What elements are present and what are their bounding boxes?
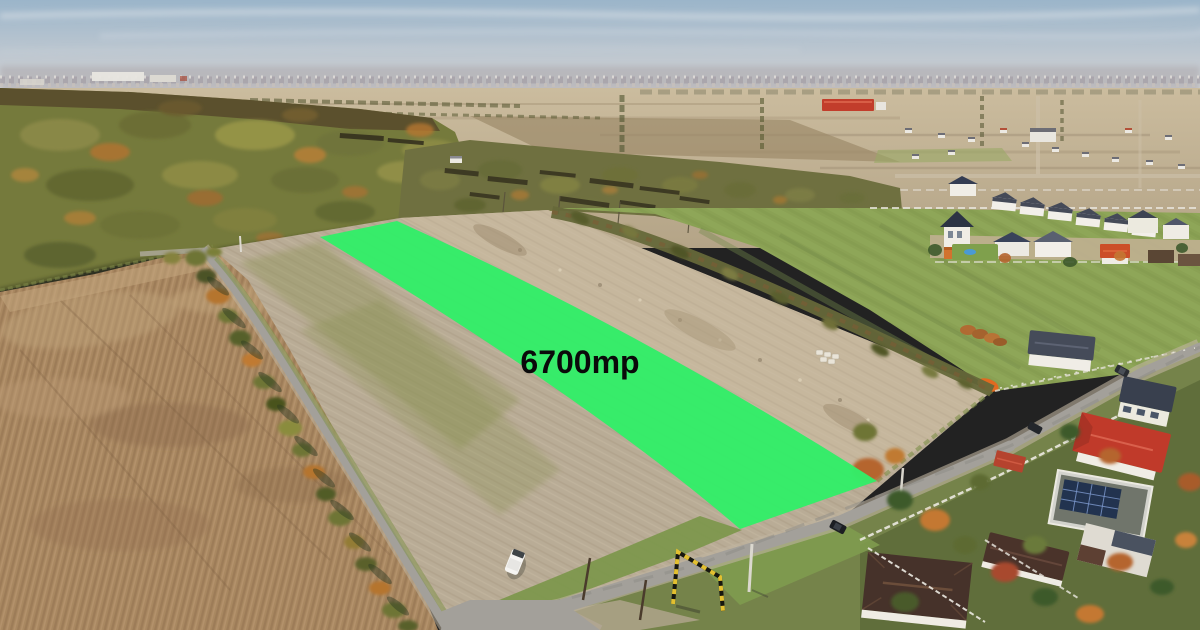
distant-green-strip-2 — [874, 148, 1012, 163]
white-farmhouse — [450, 156, 462, 163]
pool — [964, 249, 976, 255]
aerial-photo-scene: 6700mp — [0, 0, 1200, 630]
house-brown-A — [861, 552, 972, 629]
house-top-white — [1026, 330, 1095, 372]
white-pole — [240, 236, 241, 252]
area-label: 6700mp — [520, 344, 639, 380]
